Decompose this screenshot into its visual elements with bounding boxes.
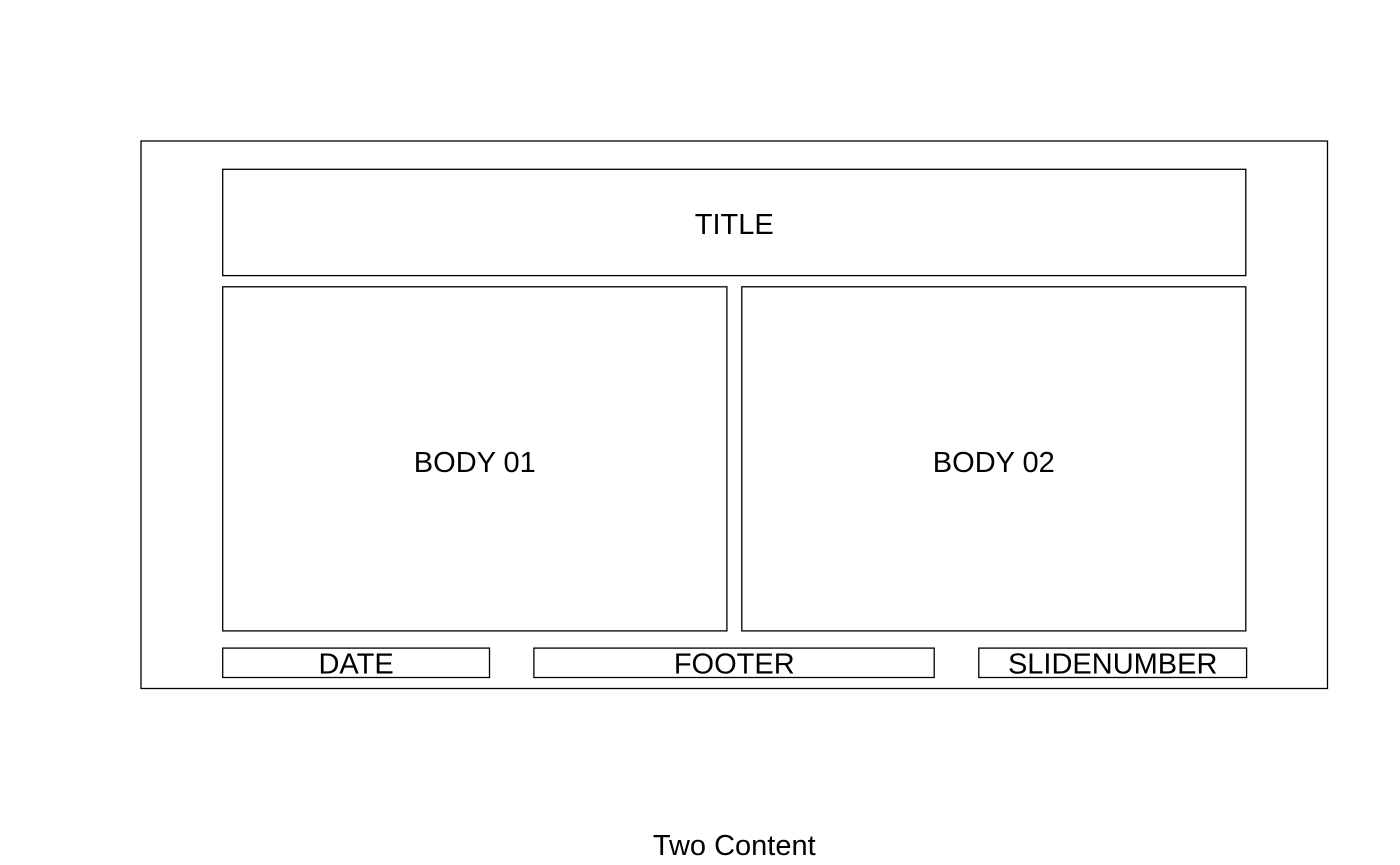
svg-text:BODY 02: BODY 02 <box>933 447 1055 479</box>
svg-text:BODY 01: BODY 01 <box>414 447 536 479</box>
svg-text:FOOTER: FOOTER <box>674 648 795 680</box>
svg-text:SLIDENUMBER: SLIDENUMBER <box>1008 648 1218 680</box>
svg-text:TITLE: TITLE <box>695 209 774 241</box>
svg-text:Two Content: Two Content <box>653 830 816 862</box>
svg-text:DATE: DATE <box>318 648 393 680</box>
